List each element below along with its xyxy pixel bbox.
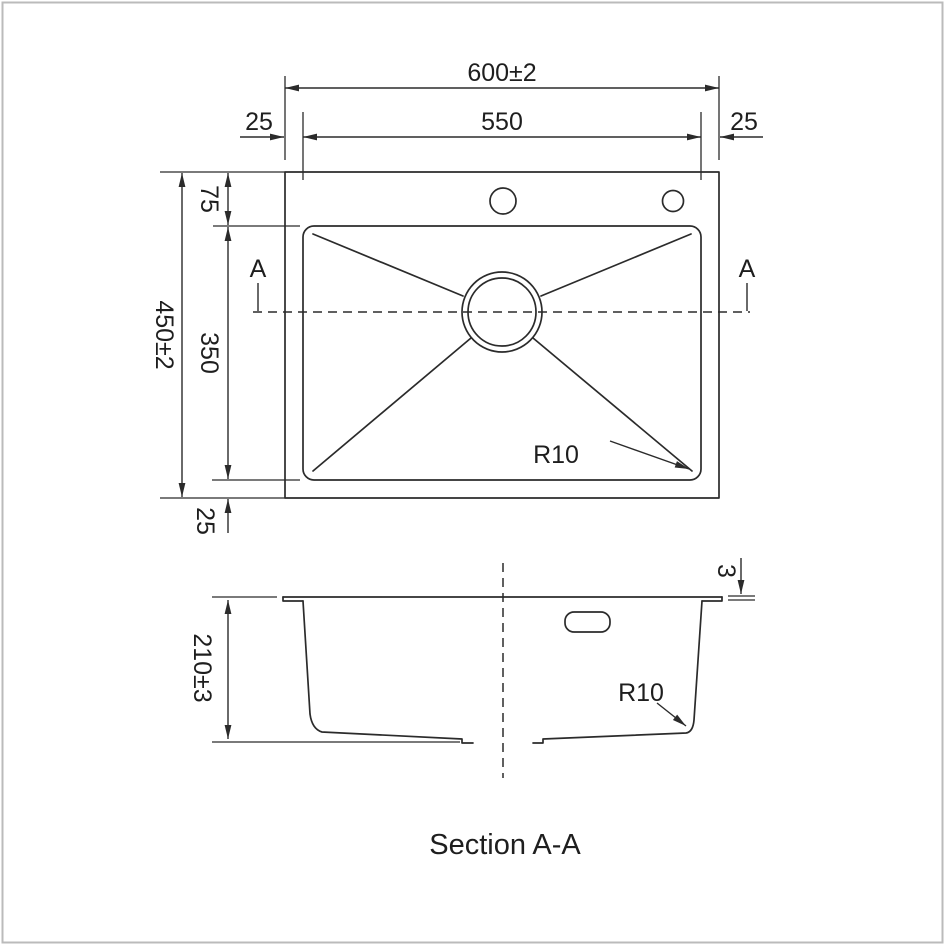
sink-technical-drawing: A A R10 600±2 550 25 25 450±2 75: [0, 0, 945, 945]
dim-label-inner-height: 350: [195, 332, 223, 374]
radius-label-top-view: R10: [533, 441, 579, 469]
dim-label-rim-thickness: 3: [712, 564, 740, 578]
dim-label-right-margin: 25: [730, 108, 758, 136]
slope-line-top-right: [541, 234, 691, 296]
section-view-dimensions: 210±3 3: [188, 558, 755, 742]
dim-label-inner-width: 550: [481, 108, 523, 136]
top-view: A A R10: [250, 172, 756, 498]
dim-label-top-margin: 75: [195, 185, 223, 213]
section-view: R10: [283, 563, 722, 778]
dim-label-overall-width: 600±2: [467, 59, 536, 87]
section-marker-right-label: A: [739, 255, 756, 283]
section-caption: Section A-A: [429, 829, 581, 861]
slope-line-top-left: [313, 234, 463, 296]
section-left-wall: [303, 601, 473, 743]
section-right-wall: [533, 601, 702, 743]
overflow-hole: [565, 612, 610, 632]
faucet-hole-center: [490, 188, 516, 214]
dim-label-depth: 210±3: [188, 633, 216, 702]
dim-label-bottom-margin: 25: [191, 507, 219, 535]
faucet-hole-right: [663, 191, 684, 212]
top-view-dimensions: 600±2 550 25 25 450±2 75 350 25: [150, 59, 763, 535]
image-border-frame: [3, 3, 943, 943]
dim-label-left-margin: 25: [245, 108, 273, 136]
radius-leader-top-view: [610, 441, 689, 469]
drawing-canvas: A A R10 600±2 550 25 25 450±2 75: [0, 0, 945, 945]
sink-basin-rect: [303, 226, 701, 480]
section-marker-left-label: A: [250, 255, 267, 283]
dim-label-overall-height: 450±2: [150, 300, 178, 369]
sink-outer-rect: [285, 172, 719, 498]
slope-line-bottom-left: [313, 338, 471, 471]
radius-label-section: R10: [618, 679, 664, 707]
